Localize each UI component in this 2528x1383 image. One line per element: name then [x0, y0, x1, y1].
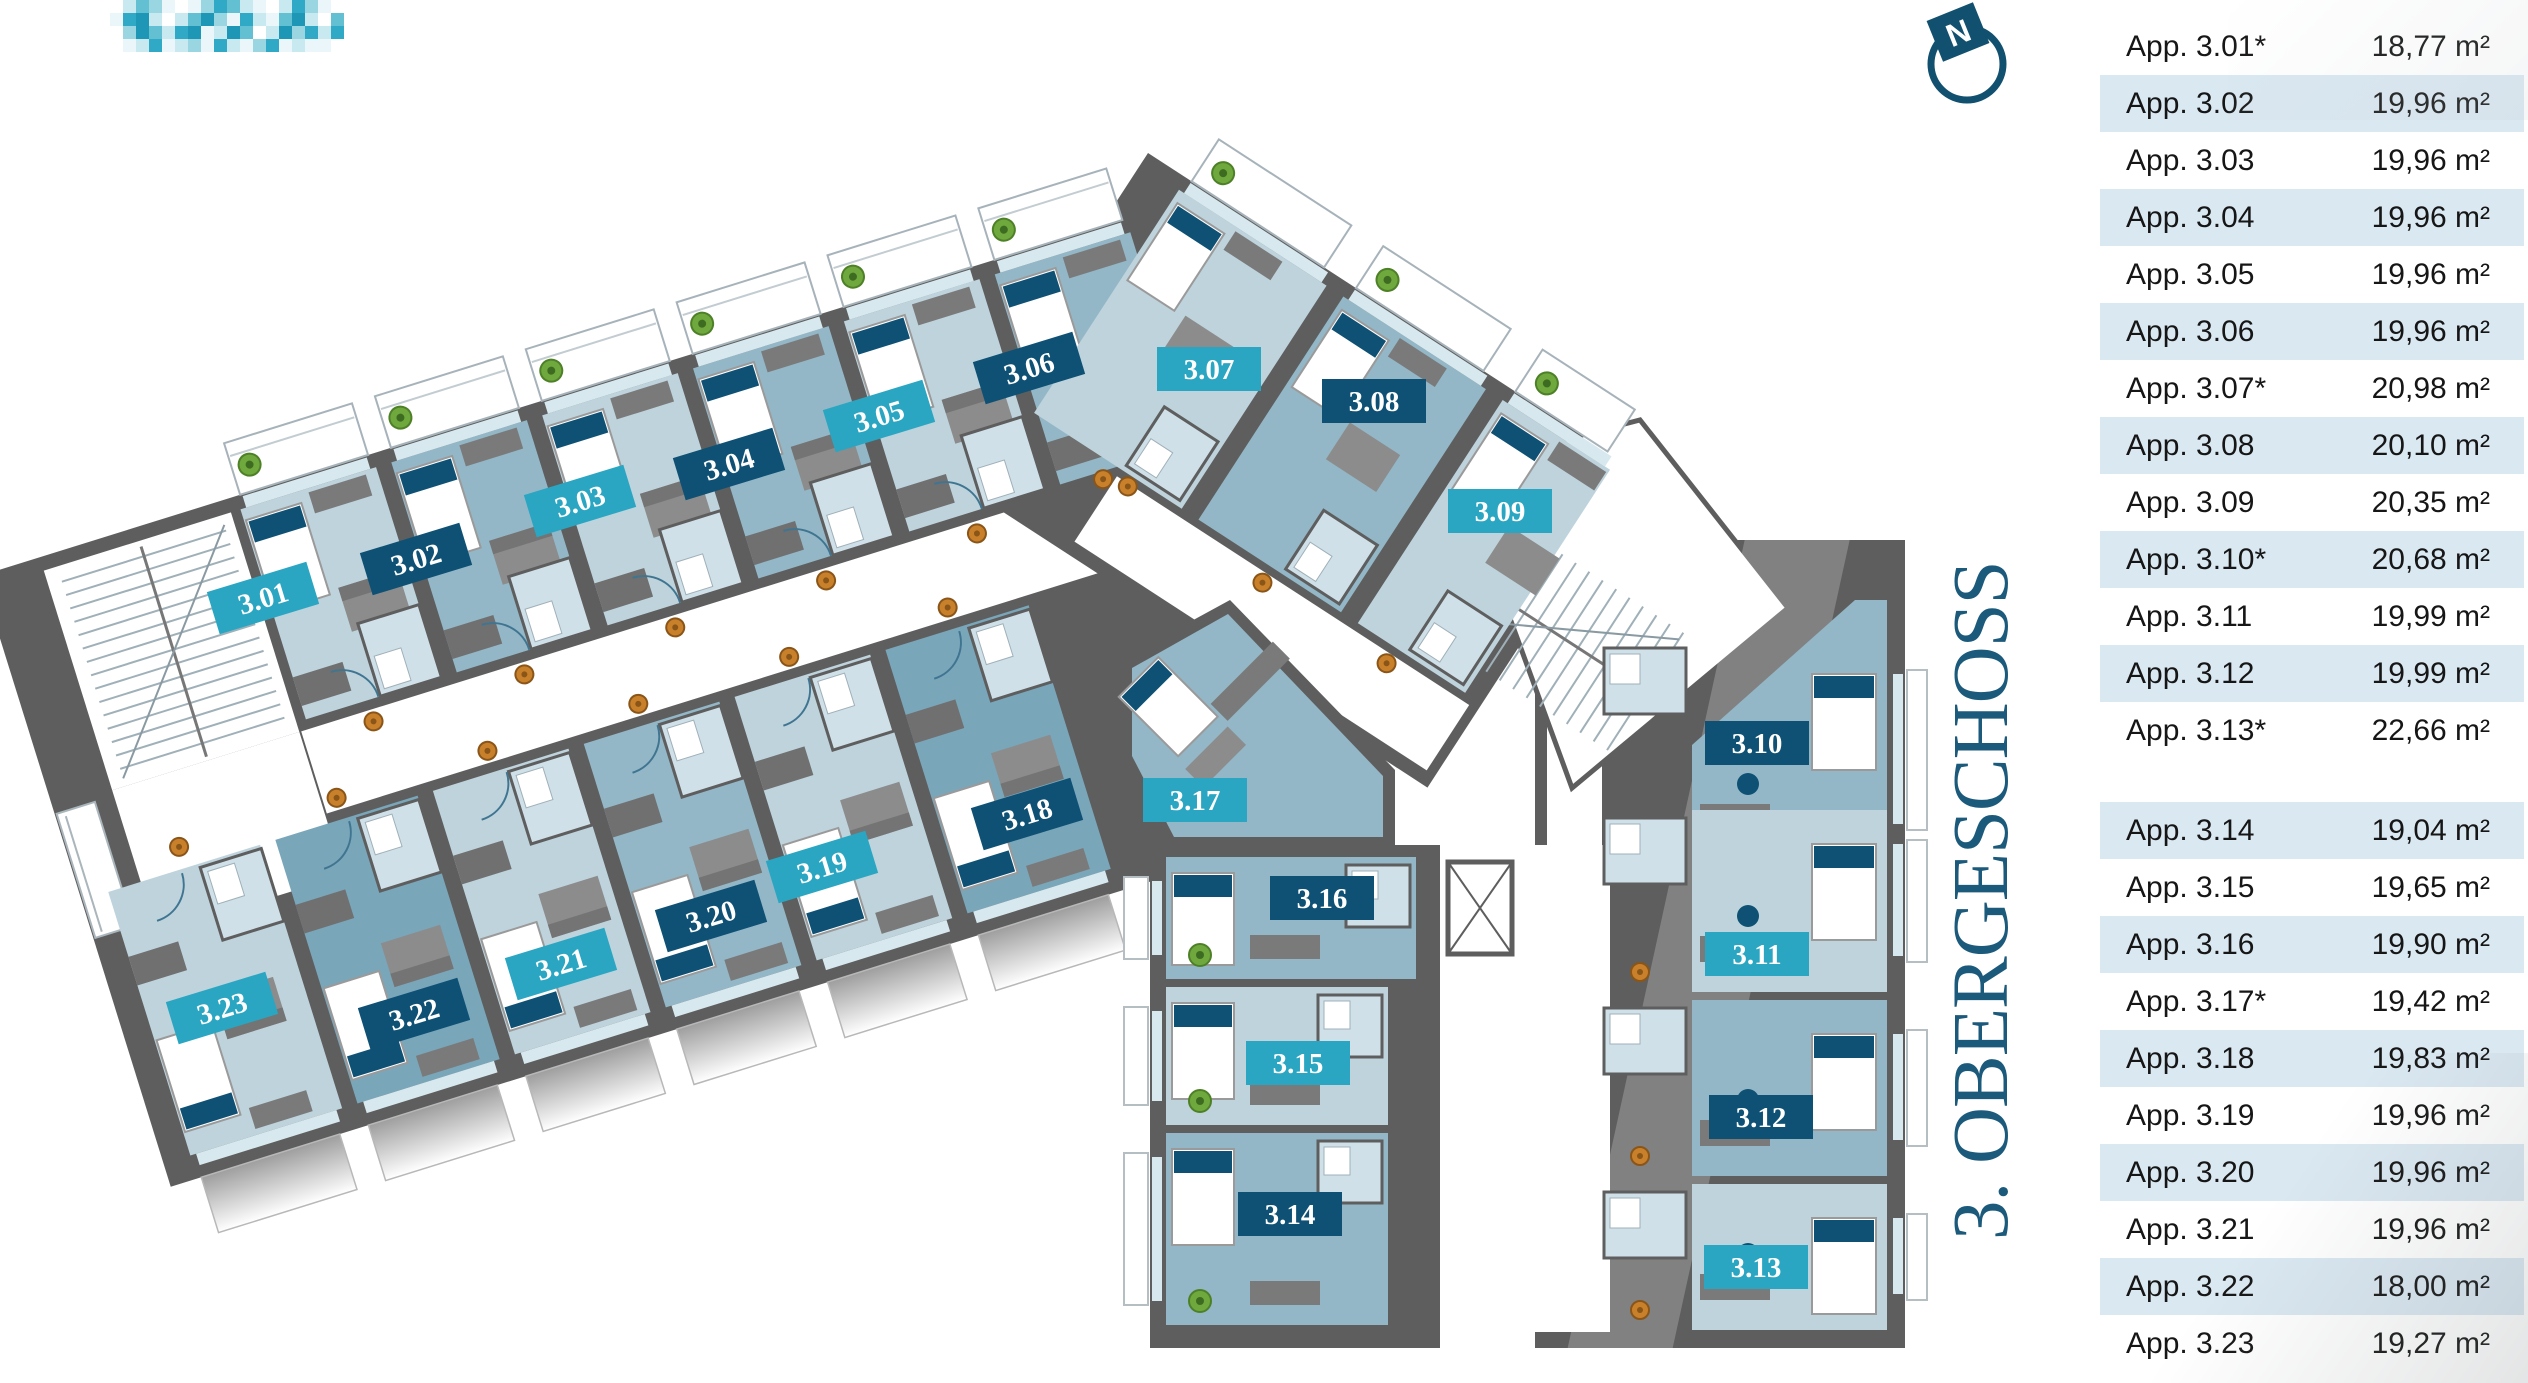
pixelated-logo — [110, 0, 344, 52]
unit-area: 22,66 m² — [2300, 714, 2524, 748]
unit-area: 19,65 m² — [2300, 871, 2524, 905]
unit-label: App. 3.09 — [2100, 486, 2300, 520]
unit-row: App. 3.1519,65 m² — [2100, 859, 2524, 916]
svg-text:3.13: 3.13 — [1731, 1252, 1782, 1284]
apartment-badge-3.12: 3.12 — [1709, 1095, 1813, 1139]
unit-area: 19,96 m² — [2300, 315, 2524, 349]
unit-label: App. 3.04 — [2100, 201, 2300, 235]
unit-label: App. 3.17* — [2100, 985, 2300, 1019]
apartment-badge-3.11: 3.11 — [1705, 932, 1809, 976]
apartment-badge-3.08: 3.08 — [1322, 379, 1426, 423]
unit-area: 19,96 m² — [2300, 144, 2524, 178]
unit-row: App. 3.1419,04 m² — [2100, 802, 2524, 859]
unit-area: 20,98 m² — [2300, 372, 2524, 406]
unit-label: App. 3.11 — [2100, 600, 2300, 634]
top-right-shade — [2228, 0, 2528, 120]
unit-row: App. 3.0820,10 m² — [2100, 417, 2524, 474]
unit-label: App. 3.07* — [2100, 372, 2300, 406]
apartment-badge-3.09: 3.09 — [1448, 489, 1552, 533]
elevator — [1448, 862, 1512, 954]
svg-text:3.15: 3.15 — [1273, 1048, 1324, 1080]
unit-label: App. 3.15 — [2100, 871, 2300, 905]
apartment-badge-3.17: 3.17 — [1143, 778, 1247, 822]
unit-label: App. 3.16 — [2100, 928, 2300, 962]
unit-row: App. 3.07*20,98 m² — [2100, 360, 2524, 417]
unit-area: 19,04 m² — [2300, 814, 2524, 848]
svg-text:3.11: 3.11 — [1732, 939, 1781, 971]
unit-row: App. 3.0319,96 m² — [2100, 132, 2524, 189]
svg-text:3.14: 3.14 — [1265, 1199, 1316, 1231]
table-group-gap — [2100, 759, 2524, 802]
apartment-badge-3.15: 3.15 — [1246, 1041, 1350, 1085]
unit-area: 19,99 m² — [2300, 600, 2524, 634]
unit-area: 19,99 m² — [2300, 657, 2524, 691]
apartment-badge-3.16: 3.16 — [1270, 876, 1374, 920]
svg-text:3.07: 3.07 — [1184, 354, 1235, 386]
unit-row: App. 3.1219,99 m² — [2100, 645, 2524, 702]
svg-text:3.12: 3.12 — [1736, 1102, 1787, 1134]
svg-text:3.16: 3.16 — [1297, 883, 1348, 915]
apartment-badge-3.13: 3.13 — [1704, 1245, 1808, 1289]
apartment-badge-3.07: 3.07 — [1157, 347, 1261, 391]
north-compass: N — [1927, 2, 2003, 100]
unit-row: App. 3.0519,96 m² — [2100, 246, 2524, 303]
unit-row: App. 3.0419,96 m² — [2100, 189, 2524, 246]
unit-row: App. 3.0619,96 m² — [2100, 303, 2524, 360]
svg-text:3.17: 3.17 — [1170, 785, 1221, 817]
unit-label: App. 3.13* — [2100, 714, 2300, 748]
svg-text:3.08: 3.08 — [1349, 386, 1400, 418]
unit-row: App. 3.0920,35 m² — [2100, 474, 2524, 531]
unit-label: App. 3.03 — [2100, 144, 2300, 178]
unit-row: App. 3.17*19,42 m² — [2100, 973, 2524, 1030]
unit-row: App. 3.13*22,66 m² — [2100, 702, 2524, 759]
unit-area: 20,10 m² — [2300, 429, 2524, 463]
svg-text:3.09: 3.09 — [1475, 496, 1526, 528]
unit-label: App. 3.05 — [2100, 258, 2300, 292]
unit-label: App. 3.10* — [2100, 543, 2300, 577]
apartment-badge-3.14: 3.14 — [1238, 1192, 1342, 1236]
unit-area: 20,68 m² — [2300, 543, 2524, 577]
unit-label: App. 3.14 — [2100, 814, 2300, 848]
unit-area: 20,35 m² — [2300, 486, 2524, 520]
svg-text:3.10: 3.10 — [1732, 728, 1783, 760]
unit-row: App. 3.1119,99 m² — [2100, 588, 2524, 645]
unit-row: App. 3.1619,90 m² — [2100, 916, 2524, 973]
unit-label: App. 3.12 — [2100, 657, 2300, 691]
unit-row: App. 3.10*20,68 m² — [2100, 531, 2524, 588]
page-corner-shade — [1908, 1053, 2528, 1383]
unit-area: 19,42 m² — [2300, 985, 2524, 1019]
unit-label: App. 3.06 — [2100, 315, 2300, 349]
apartment-badge-3.10: 3.10 — [1705, 721, 1809, 765]
unit-area: 19,90 m² — [2300, 928, 2524, 962]
unit-area: 19,96 m² — [2300, 258, 2524, 292]
unit-label: App. 3.08 — [2100, 429, 2300, 463]
unit-area: 19,96 m² — [2300, 201, 2524, 235]
